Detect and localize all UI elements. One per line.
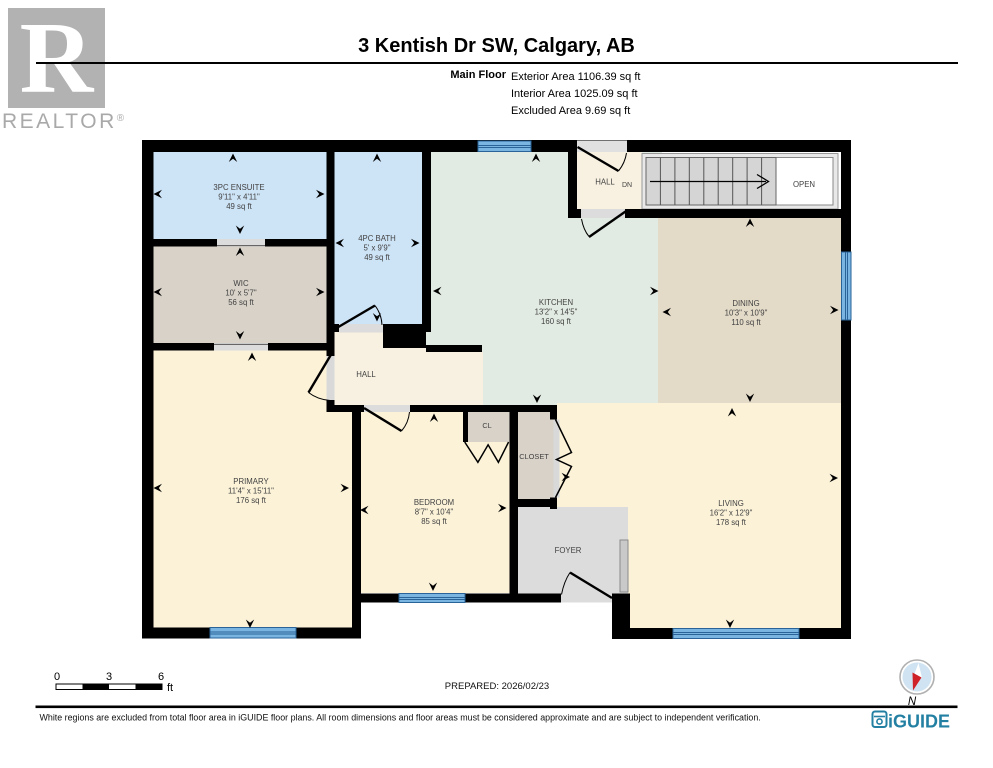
svg-text:160 sq ft: 160 sq ft — [541, 317, 572, 326]
svg-text:FOYER: FOYER — [555, 546, 582, 555]
svg-text:176 sq ft: 176 sq ft — [236, 496, 267, 505]
svg-text:49 sq ft: 49 sq ft — [364, 253, 390, 262]
svg-text:White regions are excluded fro: White regions are excluded from total fl… — [40, 713, 761, 723]
svg-text:110 sq ft: 110 sq ft — [731, 318, 761, 327]
svg-text:13'2" x 14'5": 13'2" x 14'5" — [535, 308, 578, 317]
svg-text:10' x 5'7": 10' x 5'7" — [225, 289, 257, 298]
svg-text:CL: CL — [482, 421, 491, 430]
svg-text:178 sq ft: 178 sq ft — [716, 518, 747, 527]
svg-text:10'3" x 10'9": 10'3" x 10'9" — [725, 309, 768, 318]
svg-text:3: 3 — [106, 671, 112, 683]
svg-text:HALL: HALL — [356, 370, 376, 379]
svg-text:0: 0 — [54, 671, 60, 683]
svg-text:4PC BATH: 4PC BATH — [358, 234, 396, 243]
svg-text:3PC ENSUITE: 3PC ENSUITE — [213, 183, 264, 192]
svg-text:PRIMARY: PRIMARY — [233, 477, 269, 486]
svg-text:49 sq ft: 49 sq ft — [226, 202, 252, 211]
svg-text:KITCHEN: KITCHEN — [539, 298, 573, 307]
svg-text:PREPARED: 2026/02/23: PREPARED: 2026/02/23 — [445, 681, 549, 692]
svg-text:9'11" x 4'11": 9'11" x 4'11" — [218, 193, 260, 202]
svg-text:6: 6 — [158, 671, 164, 683]
svg-text:DINING: DINING — [732, 299, 759, 308]
svg-text:LIVING: LIVING — [718, 499, 744, 508]
svg-text:HALL: HALL — [595, 178, 615, 187]
svg-text:ft: ft — [167, 682, 173, 694]
svg-text:16'2" x 12'9": 16'2" x 12'9" — [710, 509, 753, 518]
svg-text:85 sq ft: 85 sq ft — [421, 517, 447, 526]
svg-text:iGUIDE: iGUIDE — [888, 712, 950, 732]
svg-text:DN: DN — [622, 182, 632, 189]
svg-text:56 sq ft: 56 sq ft — [228, 298, 254, 307]
svg-text:CLOSET: CLOSET — [519, 452, 549, 461]
svg-text:WIC: WIC — [233, 279, 249, 288]
svg-text:OPEN: OPEN — [793, 180, 815, 189]
svg-text:8'7" x 10'4": 8'7" x 10'4" — [415, 508, 454, 517]
svg-text:BEDROOM: BEDROOM — [414, 498, 454, 507]
svg-text:11'4" x 15'11": 11'4" x 15'11" — [228, 487, 274, 496]
svg-text:5' x 9'9": 5' x 9'9" — [364, 244, 391, 253]
